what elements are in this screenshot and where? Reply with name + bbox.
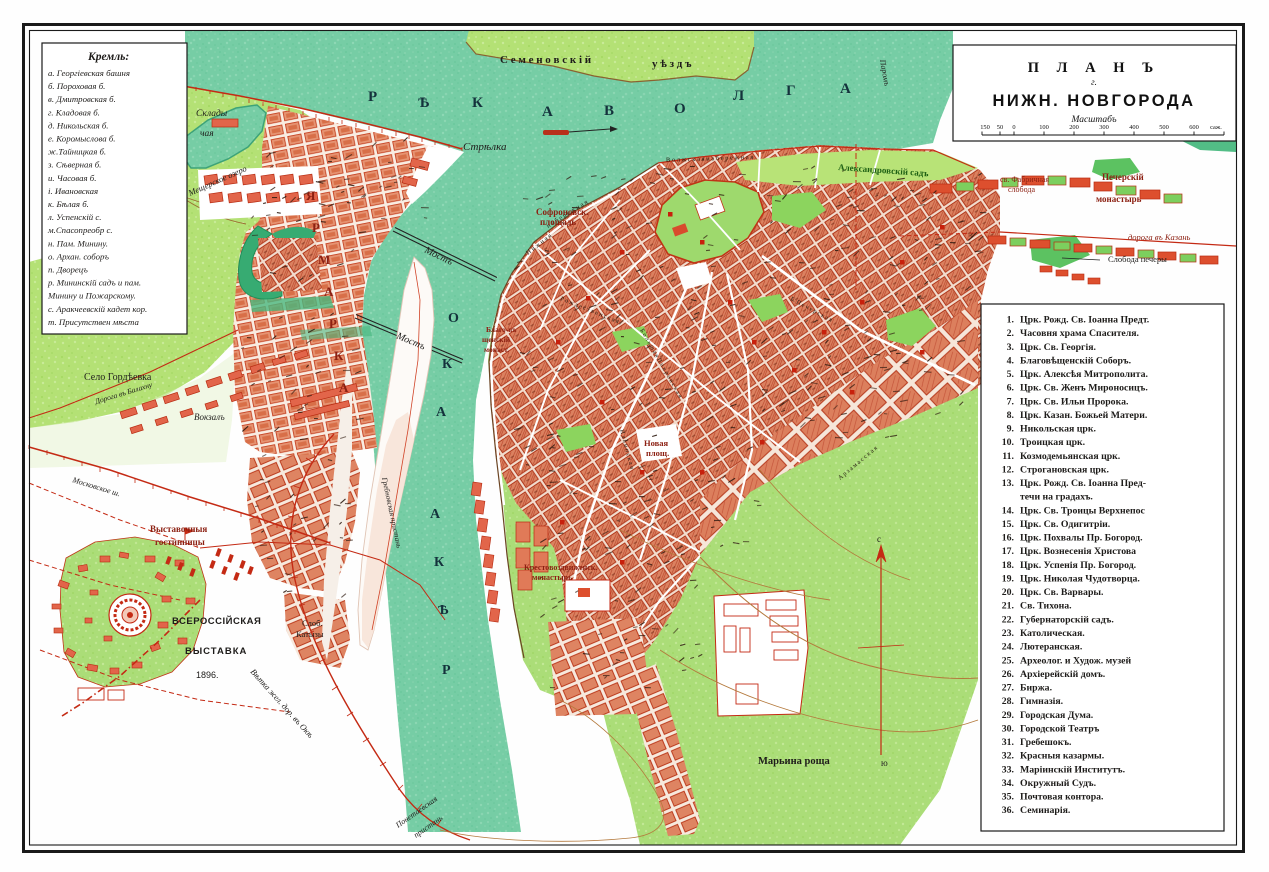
svg-text:А: А <box>339 380 349 395</box>
svg-text:Црк. Св. Георгія.: Црк. Св. Георгія. <box>1020 342 1097 353</box>
svg-text:л. Успенскій с.: л. Успенскій с. <box>47 212 101 222</box>
svg-text:і. Ивановская: і. Ивановская <box>48 186 98 196</box>
svg-text:10.: 10. <box>1002 437 1015 448</box>
svg-text:Р: Р <box>368 89 377 105</box>
svg-text:т. Присутствен мѣста: т. Присутствен мѣста <box>48 317 139 327</box>
svg-text:100: 100 <box>1039 124 1049 131</box>
svg-text:Часовня храма Спасителя.: Часовня храма Спасителя. <box>1020 328 1140 339</box>
svg-text:12.: 12. <box>1002 464 1015 475</box>
svg-text:г. Кладовая б.: г. Кладовая б. <box>48 107 100 117</box>
svg-text:саж.: саж. <box>1210 124 1222 131</box>
svg-text:А: А <box>542 104 553 120</box>
svg-text:150: 150 <box>980 124 990 131</box>
svg-text:г.: г. <box>1091 77 1097 87</box>
svg-text:к. Бѣлая б.: к. Бѣлая б. <box>48 199 89 209</box>
svg-text:Археолог. и Худож. музей: Археолог. и Худож. музей <box>1020 655 1131 666</box>
svg-text:5.: 5. <box>1007 369 1015 380</box>
svg-text:Красныя казармы.: Красныя казармы. <box>1020 751 1105 762</box>
svg-text:Р: Р <box>312 220 320 235</box>
svg-text:слобода: слобода <box>1008 185 1035 194</box>
svg-text:п. Дворецъ: п. Дворецъ <box>48 265 88 275</box>
svg-text:19.: 19. <box>1002 573 1015 584</box>
svg-text:Црк. Вознесенія Христова: Црк. Вознесенія Христова <box>1020 546 1136 557</box>
svg-text:16.: 16. <box>1002 533 1015 544</box>
svg-text:Св. Тихона.: Св. Тихона. <box>1020 601 1072 612</box>
svg-text:3.: 3. <box>1007 342 1015 353</box>
svg-text:А: А <box>840 81 851 97</box>
svg-text:Црк. Св. Одигитріи.: Црк. Св. Одигитріи. <box>1020 519 1111 530</box>
svg-text:Гимназія.: Гимназія. <box>1020 696 1064 707</box>
svg-text:чая: чая <box>200 129 214 139</box>
svg-text:Католическая.: Католическая. <box>1020 628 1085 639</box>
svg-text:Благовѣщенскій Соборъ.: Благовѣщенскій Соборъ. <box>1020 355 1132 366</box>
svg-text:В: В <box>604 103 614 119</box>
svg-text:и. Часовая б.: и. Часовая б. <box>48 173 96 183</box>
svg-text:Печерскій: Печерскій <box>1102 172 1144 182</box>
svg-text:щенскій: щенскій <box>482 335 511 344</box>
svg-text:св. Фабричная: св. Фабричная <box>1000 175 1049 184</box>
svg-text:24.: 24. <box>1002 642 1015 653</box>
svg-text:27.: 27. <box>1002 683 1015 694</box>
svg-text:Слобода печеры: Слобода печеры <box>1108 254 1167 264</box>
svg-text:Црк. Св. Ильи Пророка.: Црк. Св. Ильи Пророка. <box>1020 396 1129 407</box>
svg-text:Црк. Св. Троицы Верхнепос: Црк. Св. Троицы Верхнепос <box>1020 505 1146 516</box>
svg-text:25.: 25. <box>1002 655 1015 666</box>
svg-text:Г: Г <box>786 83 796 99</box>
svg-text:36.: 36. <box>1002 805 1015 816</box>
svg-text:Кремль:: Кремль: <box>87 51 129 63</box>
svg-text:Благо-въ: Благо-въ <box>486 325 517 334</box>
svg-text:А: А <box>436 405 447 420</box>
svg-text:б. Пороховая б.: б. Пороховая б. <box>48 81 105 91</box>
svg-text:Црк. Успенія Пр. Богород.: Црк. Успенія Пр. Богород. <box>1020 560 1137 571</box>
svg-text:Биржа.: Биржа. <box>1020 683 1053 694</box>
svg-text:К: К <box>434 555 445 570</box>
svg-text:Архіерейскій домъ.: Архіерейскій домъ. <box>1020 669 1106 680</box>
svg-text:Црк. Рожд. Св. Іоанна Пред-: Црк. Рожд. Св. Іоанна Пред- <box>1020 478 1146 489</box>
svg-text:з. Сѣверная б.: з. Сѣверная б. <box>47 160 101 170</box>
svg-text:26.: 26. <box>1002 669 1015 680</box>
svg-text:Р: Р <box>442 663 451 678</box>
svg-text:Село Гордѣевка: Село Гордѣевка <box>84 372 152 383</box>
svg-text:у ѣ з д ъ: у ѣ з д ъ <box>652 58 692 70</box>
svg-text:600: 600 <box>1189 124 1199 131</box>
svg-text:31.: 31. <box>1002 737 1015 748</box>
svg-text:монаст.: монаст. <box>484 345 509 354</box>
svg-text:площ.: площ. <box>646 448 669 458</box>
svg-text:площадь: площадь <box>540 217 576 227</box>
svg-text:р. Мининскій садъ и пам.: р. Мининскій садъ и пам. <box>47 278 141 288</box>
svg-text:Црк. Алексѣя Митрополита.: Црк. Алексѣя Митрополита. <box>1020 369 1148 380</box>
svg-text:500: 500 <box>1159 124 1169 131</box>
svg-text:О: О <box>448 311 459 326</box>
svg-text:Црк. Казан. Божьей Матери.: Црк. Казан. Божьей Матери. <box>1020 410 1148 421</box>
svg-text:А: А <box>324 284 334 299</box>
svg-text:7.: 7. <box>1007 396 1015 407</box>
svg-text:К: К <box>472 95 483 111</box>
svg-text:К: К <box>442 357 453 372</box>
svg-text:9.: 9. <box>1007 424 1015 435</box>
svg-text:17.: 17. <box>1002 546 1015 557</box>
svg-text:Слоб.: Слоб. <box>302 618 323 628</box>
svg-text:течи на градахъ.: течи на градахъ. <box>1020 492 1093 503</box>
svg-text:Козмодемьянская црк.: Козмодемьянская црк. <box>1020 451 1121 462</box>
svg-text:Я: Я <box>306 188 316 203</box>
svg-text:монастырь: монастырь <box>1096 194 1142 204</box>
svg-text:н. Пам. Минину.: н. Пам. Минину. <box>48 238 108 248</box>
svg-text:50: 50 <box>997 124 1003 131</box>
svg-text:4.: 4. <box>1007 355 1015 366</box>
svg-text:14.: 14. <box>1002 505 1015 516</box>
svg-text:35.: 35. <box>1002 792 1015 803</box>
svg-text:200: 200 <box>1069 124 1079 131</box>
svg-text:НИЖН. НОВГОРОДА: НИЖН. НОВГОРОДА <box>993 92 1196 110</box>
svg-text:с. Аракчеевскій кадет кор.: с. Аракчеевскій кадет кор. <box>48 304 147 314</box>
svg-text:13.: 13. <box>1002 478 1015 489</box>
svg-text:дорога въ Казань: дорога въ Казань <box>1128 232 1191 242</box>
svg-text:34.: 34. <box>1002 778 1015 789</box>
svg-text:Семинарія.: Семинарія. <box>1020 805 1071 816</box>
svg-text:ВЫСТАВКА: ВЫСТАВКА <box>185 646 247 657</box>
svg-text:гостинницы: гостинницы <box>155 537 205 547</box>
svg-text:Црк. Рожд. Св. Іоанна Предт.: Црк. Рожд. Св. Іоанна Предт. <box>1020 315 1150 326</box>
svg-text:20.: 20. <box>1002 587 1015 598</box>
svg-text:монастырь: монастырь <box>532 573 573 582</box>
svg-text:Крестовоздвиженск.: Крестовоздвиженск. <box>524 563 597 572</box>
svg-text:Маріинскій Институтъ.: Маріинскій Институтъ. <box>1020 764 1126 775</box>
svg-text:21.: 21. <box>1002 601 1015 612</box>
svg-text:30.: 30. <box>1002 723 1015 734</box>
svg-text:Выставочныя: Выставочныя <box>150 524 207 534</box>
svg-text:П Л А Н Ъ: П Л А Н Ъ <box>1028 60 1160 76</box>
svg-text:д. Никольская б.: д. Никольская б. <box>48 120 109 130</box>
svg-text:Окружный Судъ.: Окружный Судъ. <box>1020 778 1097 789</box>
svg-text:15.: 15. <box>1002 519 1015 530</box>
svg-text:Р: Р <box>329 316 337 331</box>
svg-text:28.: 28. <box>1002 696 1015 707</box>
svg-text:Црк. Николая Чудотворца.: Црк. Николая Чудотворца. <box>1020 573 1140 584</box>
svg-text:Софроновск.: Софроновск. <box>536 207 589 217</box>
svg-text:Црк. Св. Женъ Мироносицъ.: Црк. Св. Женъ Мироносицъ. <box>1020 383 1148 394</box>
svg-text:Губернаторскій садъ.: Губернаторскій садъ. <box>1020 614 1114 625</box>
svg-text:1896.: 1896. <box>196 670 219 680</box>
svg-text:400: 400 <box>1129 124 1139 131</box>
svg-text:А: А <box>430 507 441 522</box>
svg-text:Црк. Похвалы Пр. Богород.: Црк. Похвалы Пр. Богород. <box>1020 533 1143 544</box>
svg-text:Лютеранская.: Лютеранская. <box>1020 642 1083 653</box>
svg-text:Новая: Новая <box>644 438 668 448</box>
svg-text:23.: 23. <box>1002 628 1015 639</box>
svg-text:Ѣ: Ѣ <box>418 95 429 111</box>
svg-text:ж.Тайницкая б.: ж.Тайницкая б. <box>48 147 106 157</box>
svg-text:Ѣ: Ѣ <box>438 603 449 618</box>
svg-text:в. Дмитровская б.: в. Дмитровская б. <box>48 94 116 104</box>
svg-text:0: 0 <box>1012 124 1015 131</box>
svg-text:Склады: Склады <box>196 108 228 119</box>
svg-text:Почтовая контора.: Почтовая контора. <box>1020 792 1104 803</box>
svg-text:е. Коромыслова б.: е. Коромыслова б. <box>48 134 115 144</box>
svg-text:Катызы: Катызы <box>296 629 324 639</box>
svg-text:Городская Дума.: Городская Дума. <box>1020 710 1094 721</box>
svg-text:м.Спасопреобр с.: м.Спасопреобр с. <box>47 225 113 235</box>
svg-text:ВСЕРОССІЙСКАЯ: ВСЕРОССІЙСКАЯ <box>172 615 261 627</box>
svg-text:о. Архан. соборъ: о. Архан. соборъ <box>48 251 109 261</box>
svg-text:О: О <box>674 101 686 117</box>
svg-text:18.: 18. <box>1002 560 1015 571</box>
svg-text:22.: 22. <box>1002 614 1015 625</box>
svg-text:Црк. Св. Варвары.: Црк. Св. Варвары. <box>1020 587 1104 598</box>
svg-text:Троицкая црк.: Троицкая црк. <box>1020 437 1086 448</box>
svg-text:29.: 29. <box>1002 710 1015 721</box>
svg-text:Строгановская црк.: Строгановская црк. <box>1020 464 1110 475</box>
svg-text:с: с <box>877 534 881 544</box>
svg-text:6.: 6. <box>1007 383 1015 394</box>
svg-text:8.: 8. <box>1007 410 1015 421</box>
svg-text:300: 300 <box>1099 124 1109 131</box>
svg-text:ю: ю <box>881 758 888 768</box>
svg-text:32.: 32. <box>1002 751 1015 762</box>
svg-text:Минину и Пожарскому.: Минину и Пожарскому. <box>47 291 136 301</box>
svg-text:Марьина роща: Марьина роща <box>758 756 830 767</box>
svg-text:К: К <box>334 348 344 363</box>
svg-text:Вокзалъ: Вокзалъ <box>194 412 225 422</box>
svg-text:Гребешокъ.: Гребешокъ. <box>1020 737 1072 748</box>
svg-text:а. Георгіевская башня: а. Георгіевская башня <box>48 68 130 78</box>
svg-text:С е м е н о в с к і й: С е м е н о в с к і й <box>500 54 592 66</box>
svg-text:Стрѣлка: Стрѣлка <box>463 141 507 153</box>
svg-text:Никольская црк.: Никольская црк. <box>1020 424 1096 435</box>
svg-text:2.: 2. <box>1007 328 1015 339</box>
svg-text:М: М <box>318 252 330 267</box>
svg-text:Л: Л <box>733 88 744 104</box>
svg-text:Городской Театръ: Городской Театръ <box>1020 723 1100 734</box>
svg-text:1.: 1. <box>1007 315 1015 326</box>
svg-text:33.: 33. <box>1002 764 1015 775</box>
svg-text:11.: 11. <box>1002 451 1014 462</box>
